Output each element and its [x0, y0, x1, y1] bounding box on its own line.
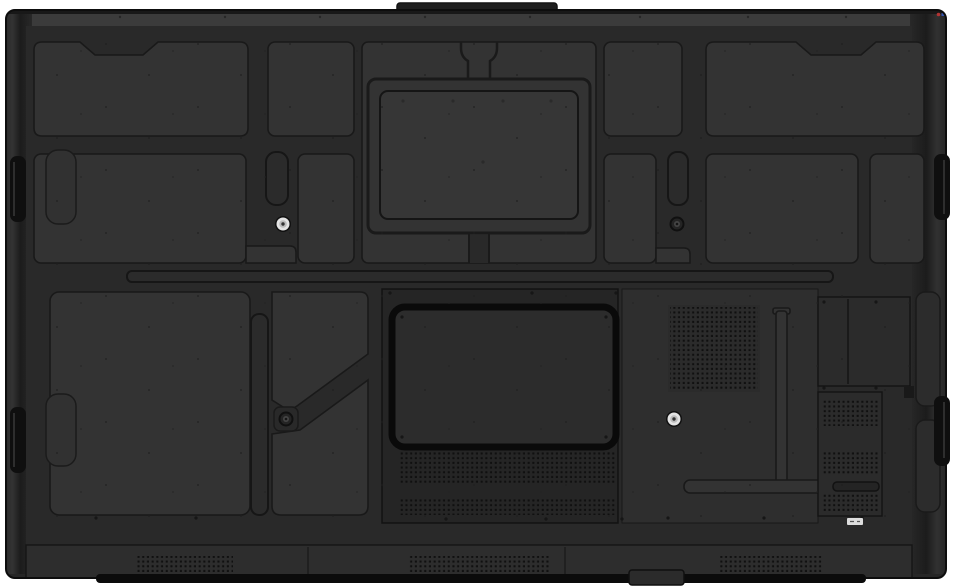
grille-4: [822, 451, 878, 475]
cap-screw-dot: [845, 16, 847, 18]
bottom-frame-bar: [96, 574, 866, 583]
dark-screw: [670, 217, 685, 232]
screw-dot: [604, 435, 607, 438]
screw-dot: [388, 291, 391, 294]
camera-mount-top-shadow: [398, 4, 556, 9]
handle-tab-left-lower: [10, 407, 26, 473]
cap-screw-dot: [319, 16, 321, 18]
cap-screw-dot: [529, 16, 531, 18]
screw-dot: [666, 516, 669, 519]
screw-dot: [874, 300, 877, 303]
top-cap-strip: [16, 14, 936, 27]
handle-tab-left-upper: [10, 156, 26, 222]
screw-dot: [620, 517, 623, 520]
screw-dot: [94, 516, 97, 519]
screw-dot: [822, 386, 825, 389]
grille-1: [399, 498, 615, 515]
screw-dot: [874, 386, 877, 389]
screw-dot: [544, 517, 547, 520]
edge-recess-right-upper: [916, 292, 940, 406]
screw-dot: [400, 315, 403, 318]
grille-5: [822, 494, 878, 511]
cap-screw-dot: [424, 16, 426, 18]
screw-dot: [762, 516, 765, 519]
screw-dot: [194, 516, 197, 519]
cap-screw-dot: [747, 16, 749, 18]
grille-7: [408, 556, 550, 573]
silver-screw: [666, 411, 682, 427]
screw-dot: [604, 315, 607, 318]
handle-tab-right-lower: [934, 396, 950, 466]
screw-dot: [822, 300, 825, 303]
grille-3: [822, 399, 878, 426]
logo-red-dot: [937, 13, 941, 17]
handle-tab-right-upper: [934, 154, 950, 220]
screw-dot: [530, 291, 533, 294]
grille-0: [399, 452, 615, 484]
display-back-cover: [6, 10, 947, 578]
photo-rear-of-display: [0, 0, 960, 587]
cap-screw-dot: [224, 16, 226, 18]
screw-dot: [444, 517, 447, 520]
cap-screw-dot: [119, 16, 121, 18]
screw-dot: [614, 291, 617, 294]
cap-screw-dot: [639, 16, 641, 18]
serial-label: [847, 518, 863, 525]
serial-label-sticker: [847, 518, 863, 525]
bottom-foot: [629, 570, 684, 585]
silver-screw: [275, 216, 291, 232]
grille-2: [670, 307, 758, 390]
dark-screw: [279, 412, 294, 427]
rear-panel-illustration: [0, 0, 960, 587]
grille-6: [137, 556, 233, 573]
screw-dot: [400, 435, 403, 438]
grille-8: [718, 556, 822, 573]
